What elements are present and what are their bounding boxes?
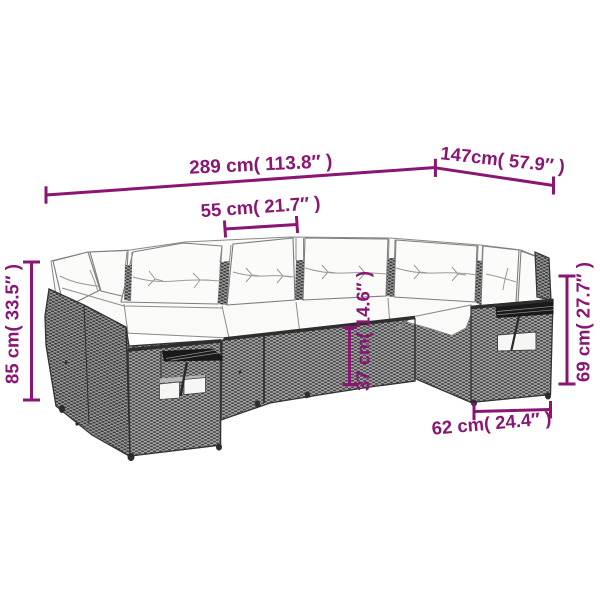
svg-text:289 cm( 113.8″ ): 289 cm( 113.8″ ) bbox=[189, 151, 333, 178]
svg-text:62 cm( 24.4″ ): 62 cm( 24.4″ ) bbox=[431, 407, 552, 438]
svg-text:69 cm( 27.7″ ): 69 cm( 27.7″ ) bbox=[573, 262, 594, 382]
svg-text:85 cm( 33.5″ ): 85 cm( 33.5″ ) bbox=[2, 264, 23, 384]
svg-text:37 cm( 14.6″ ): 37 cm( 14.6″ ) bbox=[353, 271, 374, 391]
svg-text:55 cm( 21.7″ ): 55 cm( 21.7″ ) bbox=[200, 192, 321, 221]
